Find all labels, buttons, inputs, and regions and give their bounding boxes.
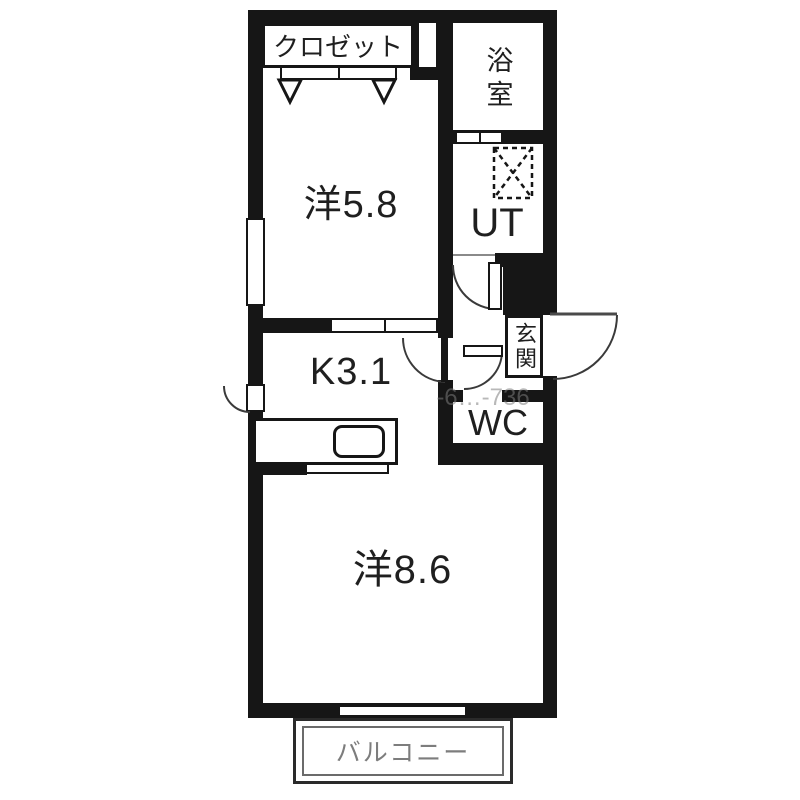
wc-door-leaf (464, 346, 502, 356)
room-8-6-label: 洋8.6 (262, 540, 543, 592)
entry-shoe-cabinet (503, 263, 557, 315)
wall-wc-bottom (438, 443, 557, 465)
floor-plan: クロゼット 浴室 洋5.8 UT K3.1 玄関 WC 洋8.6 バルコニー -… (0, 0, 800, 800)
window-left-wall (246, 218, 265, 306)
wall-top (248, 10, 557, 23)
kitchen-sink (333, 425, 385, 458)
kitchen-door-leaf (441, 338, 448, 382)
pipe-space-notch (419, 23, 436, 67)
wall-interior-vertical (438, 23, 453, 338)
entrance-label: 玄関 (505, 316, 543, 377)
balcony-window (338, 705, 467, 717)
bath-sliding-door (455, 131, 503, 144)
balcony: バルコニー (293, 718, 513, 784)
entrance-door-arc (553, 315, 617, 379)
closet-folding-door (280, 66, 397, 80)
wall-room58-kitchen (248, 318, 330, 333)
sliding-door-divider (384, 320, 386, 331)
washer-space-icon (494, 148, 532, 198)
bath-door-divider (479, 133, 481, 142)
watermark-text: -6…-736 (413, 384, 553, 412)
balcony-inner-line: バルコニー (302, 726, 504, 776)
wall-left (248, 10, 263, 718)
room-5-8-label: 洋5.8 (262, 176, 440, 224)
sliding-door-room58-kitchen (330, 318, 438, 333)
ut-door-arc (453, 265, 497, 309)
balcony-label: バルコニー (336, 733, 471, 769)
ut-opening-line (453, 254, 495, 256)
utility-label: UT (453, 196, 541, 250)
ut-door-leaf (489, 263, 501, 309)
closet-triangle-icon (279, 80, 301, 102)
door-symbols-layer (0, 0, 800, 800)
wall-right-bottom (543, 378, 557, 718)
closet-door-divider (338, 68, 340, 78)
closet-label: クロゼット (262, 23, 414, 68)
bath-label: 浴室 (453, 28, 543, 132)
closet-triangle-icon (373, 80, 395, 102)
entrance-door-opening (543, 313, 557, 378)
